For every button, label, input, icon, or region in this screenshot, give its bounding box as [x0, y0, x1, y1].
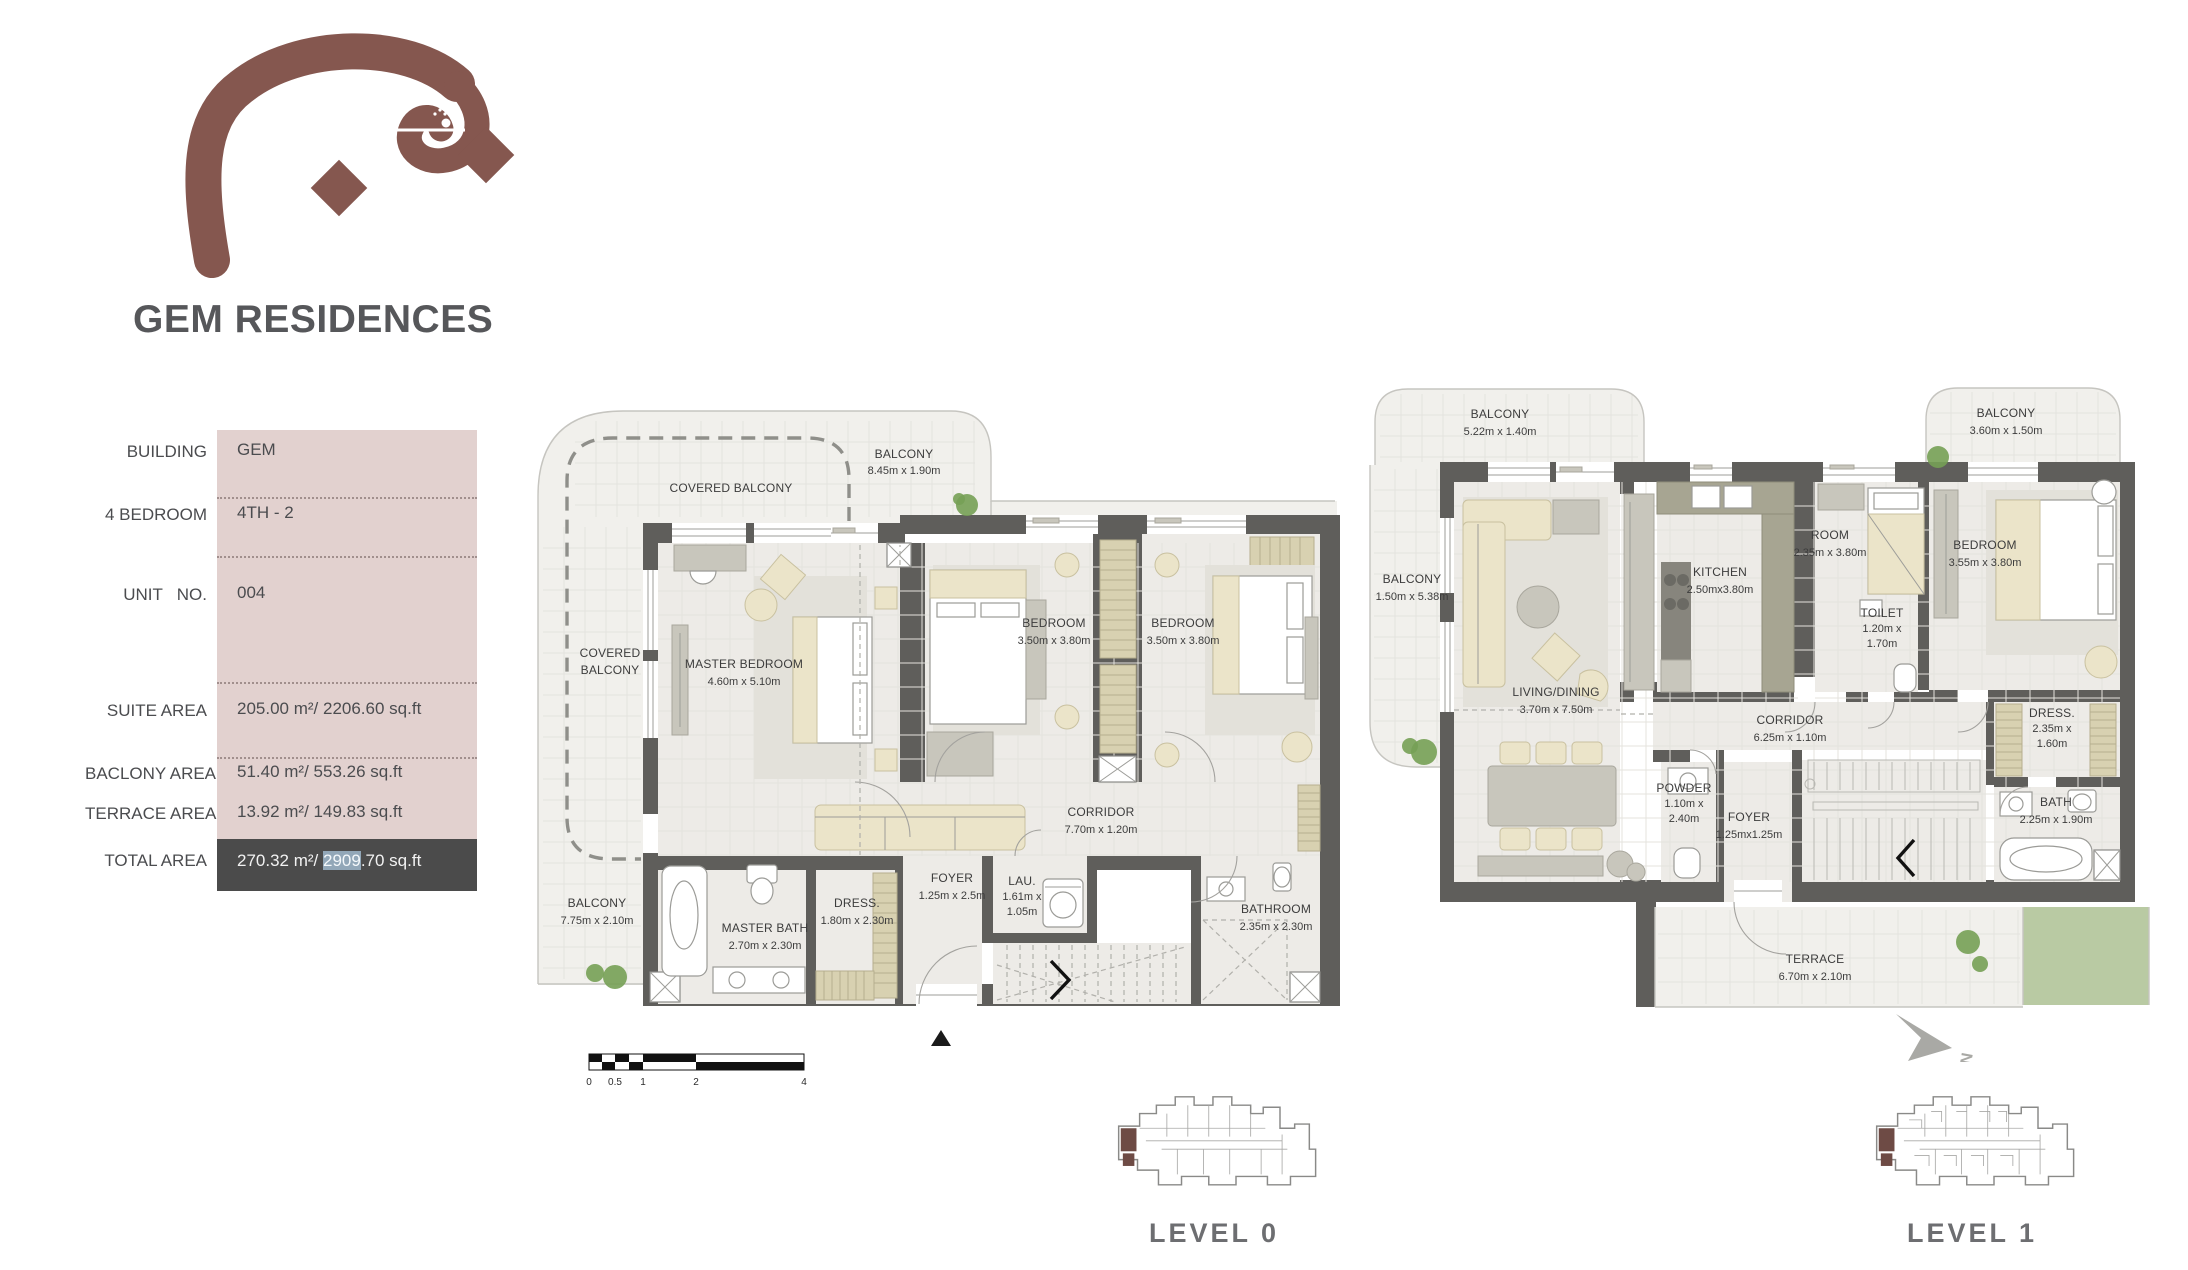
svg-text:2.40m: 2.40m: [1669, 813, 1700, 825]
label-bath: BATH: [2040, 795, 2072, 809]
label-toilet: TOILET: [1861, 606, 1904, 620]
svg-text:1.80m x 2.30m: 1.80m x 2.30m: [821, 915, 894, 927]
svg-text:2: 2: [693, 1077, 699, 1088]
svg-text:7.75m x 2.10m: 7.75m x 2.10m: [561, 915, 634, 927]
label-foyer: FOYER: [1728, 810, 1770, 824]
total-area-label: TOTAL AREA: [85, 851, 207, 871]
svg-text:2.35m x 3.80m: 2.35m x 3.80m: [1794, 547, 1867, 559]
svg-text:8.45m x 1.90m: 8.45m x 1.90m: [868, 465, 941, 477]
label-bedroom-3: BEDROOM: [1151, 616, 1214, 630]
terrace-area-label: TERRACE AREA: [85, 804, 207, 824]
svg-text:5.22m x 1.40m: 5.22m x 1.40m: [1464, 426, 1537, 438]
label-dress: DRESS.: [2029, 706, 2075, 720]
svg-text:3.60m x 1.50m: 3.60m x 1.50m: [1970, 425, 2043, 437]
label-corridor: CORRIDOR: [1068, 805, 1135, 819]
label-covered-balcony-top: COVERED BALCONY: [669, 481, 792, 495]
label-kitchen: KITCHEN: [1693, 565, 1747, 579]
label-bedroom: BEDROOM: [1953, 538, 2016, 552]
svg-text:1.50m x 5.38m: 1.50m x 5.38m: [1376, 591, 1449, 603]
keyplan-level-1: [1862, 1082, 2082, 1208]
suite-area-label: SUITE AREA: [85, 701, 207, 721]
label-master-bedroom: MASTER BEDROOM: [685, 657, 803, 671]
label-dress: DRESS.: [834, 896, 880, 910]
balcony-area-label: BACLONY AREA: [85, 764, 207, 784]
label-bedroom-2: BEDROOM: [1022, 616, 1085, 630]
svg-text:1.25m x 2.5m: 1.25m x 2.5m: [919, 890, 986, 902]
building-label: BUILDING: [85, 442, 207, 462]
label-balcony-top-right: BALCONY: [1977, 406, 2036, 420]
svg-text:1: 1: [640, 1077, 646, 1088]
divider: [217, 556, 477, 558]
divider: [217, 757, 477, 759]
level0-caption: LEVEL 0: [1094, 1218, 1334, 1249]
brand-logo-calligraphy-icon: [140, 28, 530, 293]
terrace-area-value: 13.92 m²/ 149.83 sq.ft: [237, 802, 402, 822]
label-balcony-tr: BALCONY: [875, 447, 934, 461]
svg-text:6.70m x 2.10m: 6.70m x 2.10m: [1779, 971, 1852, 983]
unit-no-value: 004: [237, 583, 265, 603]
divider: [217, 497, 477, 499]
floorplan-level-0: 0 0.5 1 2 4 COVERED BALCONY BALCONY 8.45…: [515, 265, 1365, 1095]
svg-text:3.70m x 7.50m: 3.70m x 7.50m: [1520, 704, 1593, 716]
svg-text:3.55m x 3.80m: 3.55m x 3.80m: [1949, 557, 2022, 569]
divider: [217, 682, 477, 684]
svg-text:N: N: [1956, 1051, 1975, 1062]
label-master-bath: MASTER BATH: [722, 921, 809, 935]
svg-text:1.70m: 1.70m: [1867, 638, 1898, 650]
svg-text:2.50mx3.80m: 2.50mx3.80m: [1687, 584, 1754, 596]
svg-text:4: 4: [801, 1077, 807, 1088]
svg-text:2.35m x: 2.35m x: [2032, 723, 2072, 735]
unit-no-label: UNIT NO.: [85, 585, 207, 605]
svg-text:0: 0: [586, 1077, 592, 1088]
svg-text:3.50m x 3.80m: 3.50m x 3.80m: [1018, 635, 1091, 647]
level1-caption: LEVEL 1: [1852, 1218, 2092, 1249]
svg-text:7.70m x 1.20m: 7.70m x 1.20m: [1065, 824, 1138, 836]
entry-arrow-icon: [931, 1030, 951, 1046]
svg-text:2.70m x 2.30m: 2.70m x 2.30m: [729, 940, 802, 952]
total-area-value: 270.32 m²/ 2909.70 sq.ft: [237, 851, 421, 871]
balcony-area-value: 51.40 m²/ 553.26 sq.ft: [237, 762, 402, 782]
terrace: [1655, 907, 2149, 1007]
scale-bar: 0 0.5 1 2 4: [586, 1054, 807, 1088]
svg-text:0.5: 0.5: [608, 1077, 622, 1088]
svg-text:2.25m x 1.90m: 2.25m x 1.90m: [2020, 814, 2093, 826]
label-powder: POWDER: [1656, 781, 1711, 795]
selected-text: 2909: [323, 851, 361, 870]
svg-text:BALCONY: BALCONY: [581, 663, 640, 677]
label-foyer: FOYER: [931, 871, 973, 885]
svg-text:1.61m x: 1.61m x: [1002, 891, 1042, 903]
label-bathroom: BATHROOM: [1241, 902, 1311, 916]
building-value: GEM: [237, 440, 276, 460]
label-corridor: CORRIDOR: [1757, 713, 1824, 727]
bedroom-type-label: 4 BEDROOM: [85, 505, 207, 525]
north-arrow-icon: N: [1896, 1014, 1975, 1062]
label-living-dining: LIVING/DINING: [1512, 685, 1599, 699]
label-balcony-bottom: BALCONY: [568, 896, 627, 910]
svg-text:1.25mx1.25m: 1.25mx1.25m: [1716, 829, 1783, 841]
svg-text:2.35m x 2.30m: 2.35m x 2.30m: [1240, 921, 1313, 933]
svg-text:4.60m x 5.10m: 4.60m x 5.10m: [708, 676, 781, 688]
label-balcony-left: BALCONY: [1383, 572, 1442, 586]
svg-text:1.05m: 1.05m: [1007, 906, 1038, 918]
label-balcony-top-left: BALCONY: [1471, 407, 1530, 421]
suite-area-value: 205.00 m²/ 2206.60 sq.ft: [237, 699, 421, 719]
floorplan-page: GEM RESIDENCES BUILDING GEM 4 BEDROOM 4T…: [0, 0, 2188, 1270]
floorplan-level-1: N BALCONY 5.22m x 1.40m BALCONY 1.50m x …: [1368, 262, 2168, 1062]
svg-text:1.60m: 1.60m: [2037, 738, 2068, 750]
svg-text:6.25m x 1.10m: 6.25m x 1.10m: [1754, 732, 1827, 744]
bedroom-type-value: 4TH - 2: [237, 503, 294, 523]
svg-text:1.10m x: 1.10m x: [1664, 798, 1704, 810]
unit-info-table: BUILDING GEM 4 BEDROOM 4TH - 2 UNIT NO. …: [85, 430, 485, 892]
label-terrace: TERRACE: [1786, 952, 1845, 966]
label-lau: LAU.: [1008, 874, 1035, 888]
laundry-fixtures: [1043, 879, 1083, 927]
svg-text:1.20m x: 1.20m x: [1862, 623, 1902, 635]
svg-text:3.50m x 3.80m: 3.50m x 3.80m: [1147, 635, 1220, 647]
label-covered-balcony-left: COVERED: [580, 646, 641, 660]
keyplan-level-0: [1104, 1082, 1324, 1208]
label-room: ROOM: [1811, 528, 1849, 542]
